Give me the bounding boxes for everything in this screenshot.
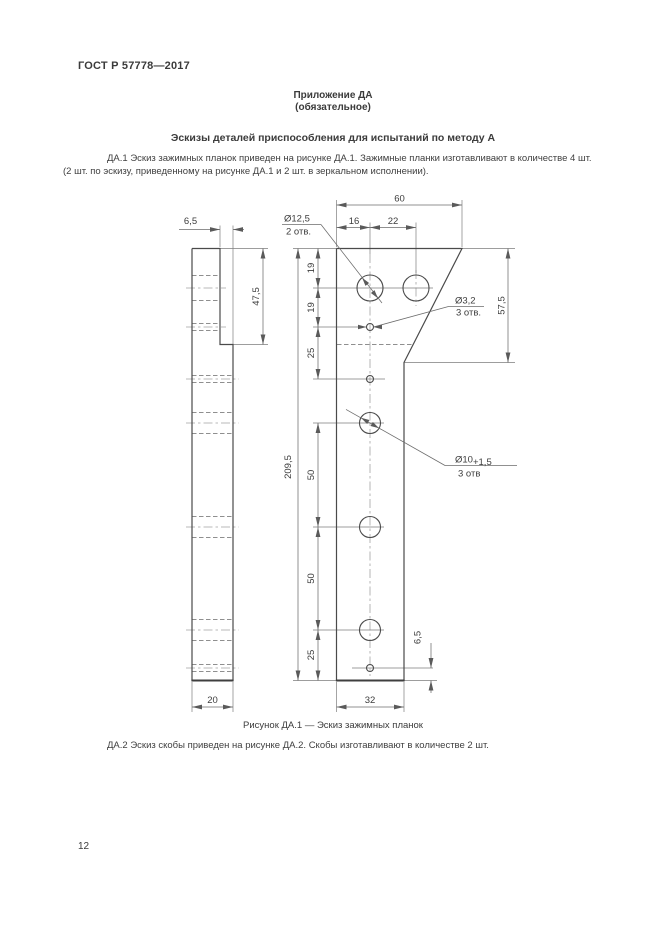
dim-label-25b: 25 xyxy=(306,650,317,661)
part-contours xyxy=(192,249,462,681)
callout-d12-5-qty: 2 отв. xyxy=(286,227,311,238)
dim-label-6-5-top: 6,5 xyxy=(184,216,197,227)
dim-label-19b: 19 xyxy=(306,302,317,313)
side-view-hidden-lines xyxy=(192,276,413,672)
dim-label-19a: 19 xyxy=(306,263,317,274)
dim-label-50b: 50 xyxy=(306,573,317,584)
dim-label-20: 20 xyxy=(207,695,218,706)
dim-label-50a: 50 xyxy=(306,470,317,481)
dim-label-60: 60 xyxy=(394,194,405,205)
dim-label-32: 32 xyxy=(365,695,376,706)
page-number: 12 xyxy=(78,841,89,852)
figure-caption: Рисунок ДА.1 — Эскиз зажимных планок xyxy=(63,720,603,731)
dim-label-57-5: 57,5 xyxy=(497,296,508,315)
dim-label-209-5: 209,5 xyxy=(283,455,294,479)
dim-label-47-5: 47,5 xyxy=(251,287,262,306)
dim-label-22: 22 xyxy=(388,216,399,227)
callout-d10: Ø10+1,5 xyxy=(455,455,492,469)
callout-d10-qty: 3 отв xyxy=(458,469,480,480)
paragraph-da2: ДА.2 Эскиз скобы приведен на рисунке ДА.… xyxy=(107,740,489,751)
side-view-outline xyxy=(192,249,233,681)
dim-label-6-5-bottom: 6,5 xyxy=(413,631,424,644)
figure-da1-technical-drawing: 60 16 22 6,5 47,5 19 19 25 50 50 25 209,… xyxy=(0,0,661,935)
dim-label-16: 16 xyxy=(349,216,360,227)
dim-label-25a: 25 xyxy=(306,348,317,359)
callout-d12-5: Ø12,5 xyxy=(284,214,310,225)
callout-d3-2: Ø3,2 xyxy=(455,296,476,307)
callout-leader-lines xyxy=(282,225,517,466)
callout-d3-2-qty: 3 отв. xyxy=(456,308,481,319)
